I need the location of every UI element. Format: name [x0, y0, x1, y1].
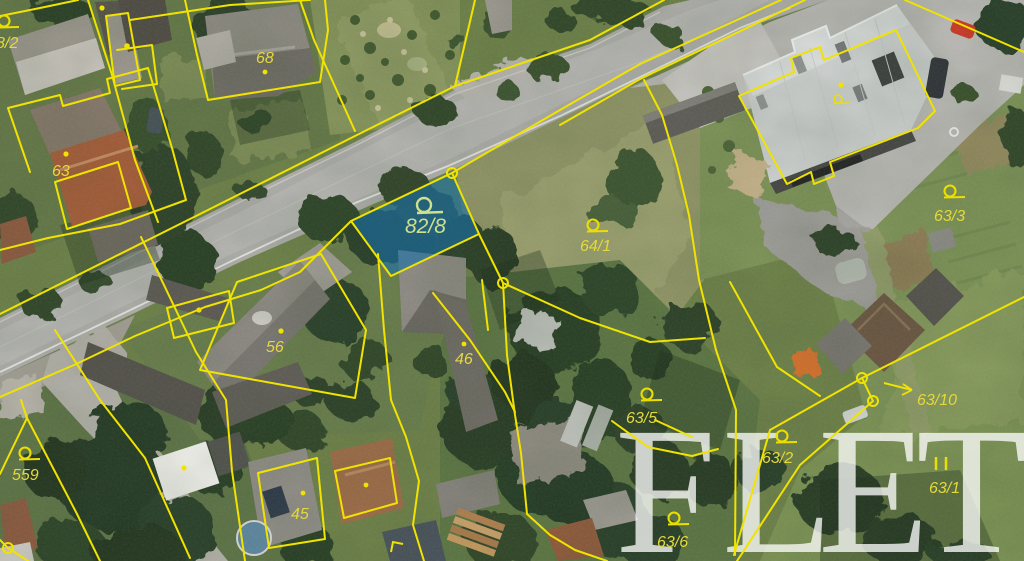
svg-text:63: 63 [52, 163, 70, 180]
svg-text:63/5: 63/5 [626, 410, 657, 427]
svg-text:63/3: 63/3 [934, 208, 965, 225]
svg-text:8/2: 8/2 [0, 35, 18, 52]
svg-text:56: 56 [266, 339, 284, 356]
svg-text:68: 68 [256, 50, 274, 67]
svg-text:63/10: 63/10 [917, 392, 957, 409]
svg-text:63/1: 63/1 [929, 480, 960, 497]
svg-text:E: E [818, 391, 929, 561]
svg-text:82/8: 82/8 [405, 215, 446, 238]
svg-text:63/6: 63/6 [657, 534, 688, 551]
svg-text:64/1: 64/1 [580, 238, 611, 255]
svg-text:45: 45 [291, 506, 309, 523]
svg-text:46: 46 [455, 351, 473, 368]
svg-text:T: T [916, 391, 1024, 561]
svg-text:559: 559 [12, 467, 39, 484]
svg-text:63/2: 63/2 [762, 450, 793, 467]
